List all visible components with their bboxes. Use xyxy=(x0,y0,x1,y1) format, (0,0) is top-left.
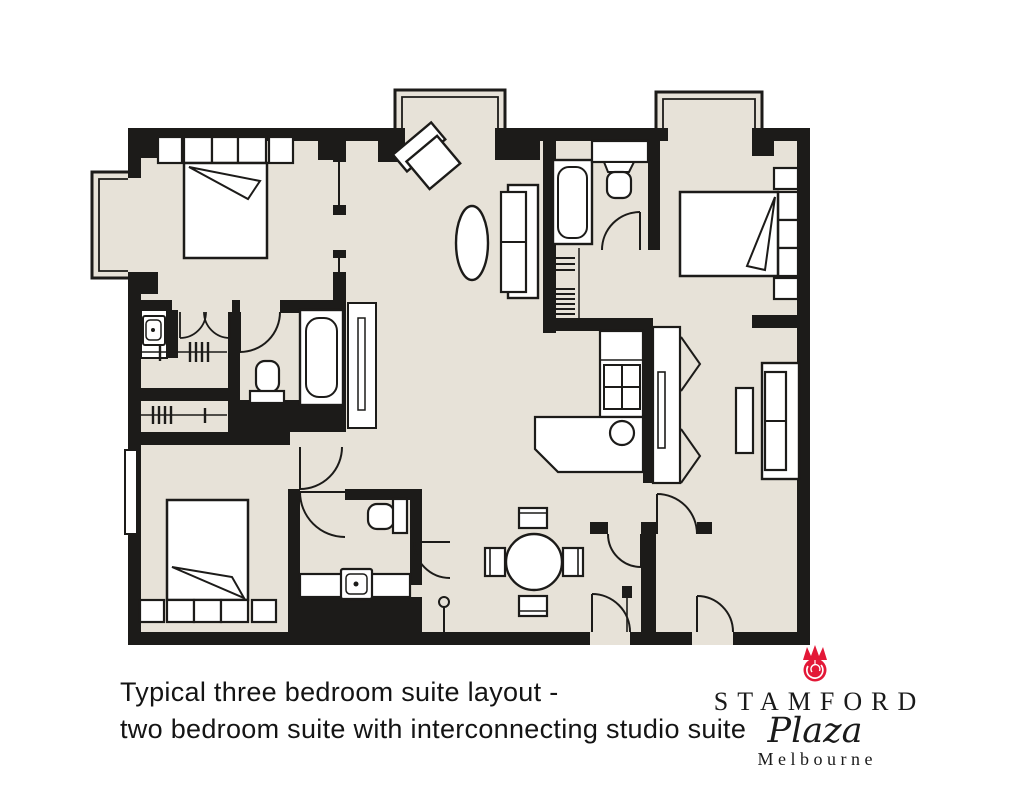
headboard xyxy=(194,600,221,622)
dining-chair xyxy=(519,596,547,616)
floor-plan-figure: Typical three bedroom suite layout - two… xyxy=(0,0,1023,797)
stamford-rose-icon xyxy=(795,643,835,687)
bay-window-studio xyxy=(656,92,762,130)
bay-window-bedroom1 xyxy=(92,172,130,278)
headboard xyxy=(212,137,238,163)
headboard xyxy=(184,137,212,163)
wall-stub xyxy=(167,310,178,358)
coffee-table xyxy=(736,388,753,453)
sofa xyxy=(762,363,799,479)
bedside-table xyxy=(774,168,798,189)
headboard xyxy=(778,248,798,276)
headboard xyxy=(167,600,194,622)
dining-chair xyxy=(519,508,547,528)
hotel-logo: STAMFORD Plaza Melbourne xyxy=(700,643,930,770)
bedside-table xyxy=(158,137,182,163)
caption: Typical three bedroom suite layout - two… xyxy=(120,674,746,748)
bedside-table xyxy=(140,600,164,622)
sofa xyxy=(501,185,538,298)
logo-script: Plaza xyxy=(700,714,930,748)
vanity-sink xyxy=(300,569,410,599)
headboard xyxy=(221,600,248,622)
bay-window-living xyxy=(395,90,505,130)
logo-city: Melbourne xyxy=(700,748,930,770)
dining-chair xyxy=(485,548,505,576)
bedside-table xyxy=(774,278,798,299)
toilet xyxy=(368,499,407,533)
mirror-console xyxy=(348,303,376,428)
caption-line-2: two bedroom suite with interconnecting s… xyxy=(120,711,746,748)
bathtub xyxy=(553,160,592,244)
vanity-sink xyxy=(141,310,167,358)
headboard xyxy=(778,220,798,248)
round-sink xyxy=(610,421,634,445)
headboard xyxy=(778,192,798,220)
round-dining-table xyxy=(506,534,562,590)
bedside-table xyxy=(252,600,276,622)
dining-chair xyxy=(563,548,583,576)
window xyxy=(125,450,137,534)
bedside-table xyxy=(269,137,293,163)
cooktop-4-burner xyxy=(604,365,640,409)
headboard xyxy=(238,137,266,163)
bathtub xyxy=(300,310,343,405)
oval-coffee-table xyxy=(456,206,488,280)
caption-line-1: Typical three bedroom suite layout - xyxy=(120,674,746,711)
